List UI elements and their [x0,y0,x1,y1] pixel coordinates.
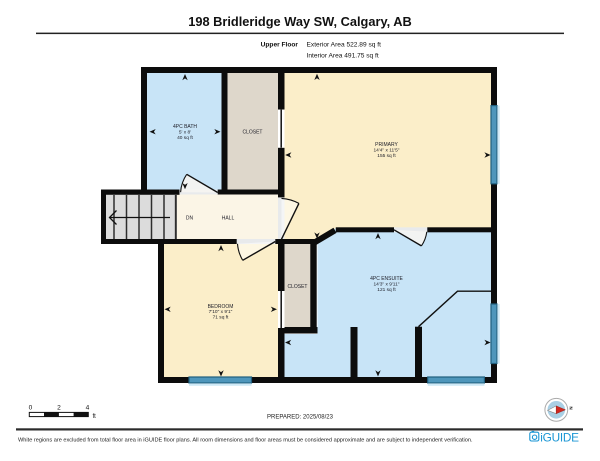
svg-text:14'3" x 9'11": 14'3" x 9'11" [374,281,400,287]
svg-text:14'4" x 11'5": 14'4" x 11'5" [374,147,400,153]
svg-text:BEDROOM: BEDROOM [208,304,234,310]
svg-text:71 sq ft: 71 sq ft [213,314,229,320]
svg-text:CLOSET: CLOSET [287,284,307,290]
svg-text:Upper Floor: Upper Floor [261,41,299,48]
svg-text:iGUIDE: iGUIDE [540,430,579,444]
svg-text:White regions are excluded fro: White regions are excluded from total fl… [18,438,473,444]
svg-text:7'10" x 9'1": 7'10" x 9'1" [209,309,233,315]
svg-text:HALL: HALL [222,216,235,222]
svg-text:Exterior Area 522.89 sq ft: Exterior Area 522.89 sq ft [307,41,382,48]
svg-text:N: N [569,406,574,409]
svg-text:40 sq ft: 40 sq ft [177,135,193,141]
svg-text:ft: ft [93,414,97,420]
svg-text:CLOSET: CLOSET [242,129,262,135]
svg-text:198 Bridleridge Way SW, Calgar: 198 Bridleridge Way SW, Calgary, AB [188,14,412,29]
svg-text:121 sq ft: 121 sq ft [377,287,396,293]
svg-text:155 sq ft: 155 sq ft [377,153,396,159]
svg-text:DN: DN [186,216,194,222]
svg-text:5' x 8': 5' x 8' [179,129,191,135]
svg-text:4: 4 [86,405,90,412]
svg-text:4PC BATH: 4PC BATH [173,124,197,130]
svg-text:2: 2 [57,405,61,412]
svg-text:PRIMARY: PRIMARY [375,142,398,148]
svg-text:0: 0 [29,405,33,412]
svg-text:PREPARED: 2025/08/23: PREPARED: 2025/08/23 [267,415,334,421]
svg-text:4PC ENSUITE: 4PC ENSUITE [370,276,403,282]
svg-text:Interior Area 491.75 sq ft: Interior Area 491.75 sq ft [307,52,379,59]
